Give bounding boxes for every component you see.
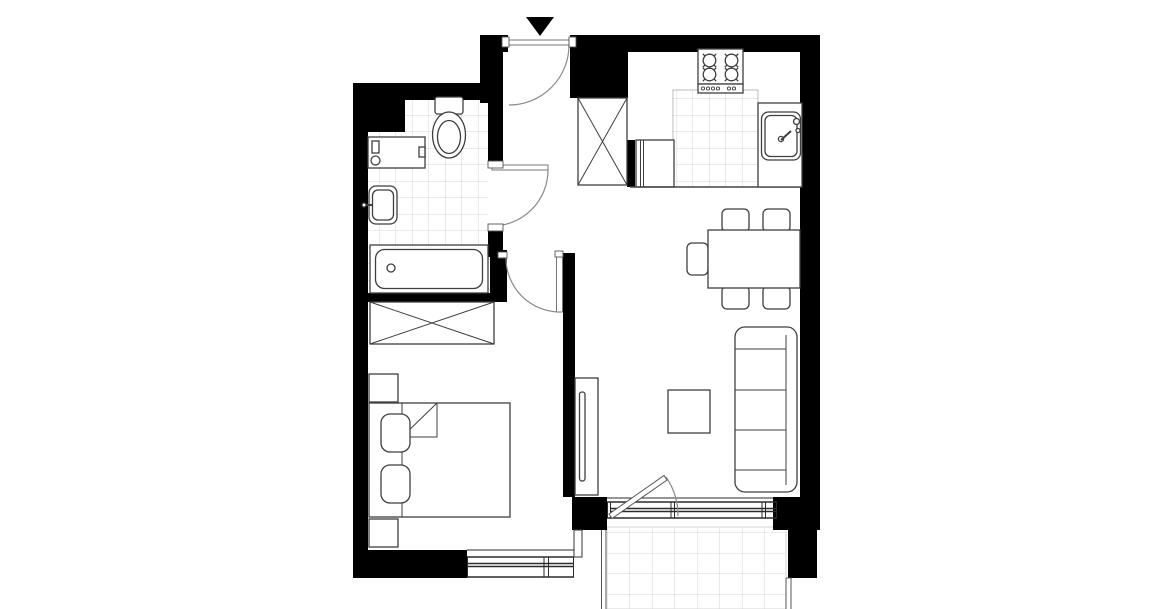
- washing-machine: [368, 137, 425, 168]
- floorplan-canvas: [0, 0, 1169, 609]
- nightstand: [369, 374, 398, 402]
- dining-chair: [763, 286, 790, 309]
- bedroom-door: [498, 251, 563, 312]
- pillow: [381, 465, 410, 503]
- entrance-door-arc: [509, 45, 569, 105]
- sofa: [735, 327, 797, 492]
- hall-wardrobe: [578, 98, 627, 185]
- tv-cabinet: [575, 378, 598, 495]
- dining-chair: [763, 209, 790, 232]
- dining-chair: [687, 243, 708, 275]
- bedroom-window: [467, 550, 574, 577]
- toilet: [433, 97, 466, 158]
- entrance-door-panel: [509, 40, 569, 45]
- bathroom-door-frame-bottom: [488, 224, 503, 231]
- bedroom-wardrobe: [370, 302, 494, 344]
- bathroom-door: [488, 161, 548, 231]
- bathtub: [370, 245, 488, 293]
- pillow: [381, 414, 410, 452]
- balcony-door-arc: [666, 477, 678, 516]
- tv-icon: [580, 392, 586, 481]
- dining-table: [708, 230, 800, 288]
- stove-knobs: [701, 87, 735, 90]
- entrance-arrow-icon: [526, 17, 554, 36]
- bed-group: [369, 374, 510, 547]
- dining-set: [687, 209, 800, 309]
- bathroom-door-frame-top: [488, 161, 503, 168]
- entrance-door: [502, 37, 576, 105]
- nightstand: [369, 519, 398, 547]
- bathroom-door-arc: [492, 170, 548, 226]
- balcony-side-wall: [574, 530, 582, 557]
- entrance-door-frame-right: [569, 37, 576, 47]
- dining-chair: [722, 209, 749, 232]
- dining-chair: [722, 286, 749, 309]
- stove: [698, 49, 743, 93]
- refrigerator: [636, 140, 674, 187]
- entrance-door-frame-left: [502, 37, 509, 47]
- coffee-table: [668, 390, 710, 433]
- bedroom-door-frame-left: [498, 252, 507, 258]
- kitchen-counter-tiles: [673, 90, 758, 187]
- bedroom-door-frame-right: [555, 251, 563, 257]
- kitchen-sink: [758, 103, 802, 187]
- balcony-tiles: [606, 527, 786, 609]
- bedroom-door-panel: [557, 257, 563, 312]
- bedroom-door-arc: [506, 258, 560, 312]
